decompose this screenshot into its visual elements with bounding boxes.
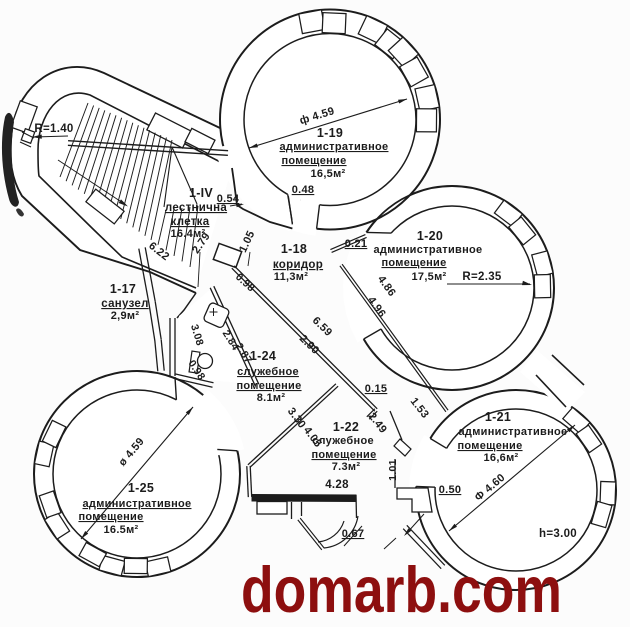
svg-text:помещение: помещение <box>311 449 376 461</box>
svg-text:0.21: 0.21 <box>345 238 368 250</box>
svg-text:1-24: 1-24 <box>250 349 276 363</box>
svg-text:1-25: 1-25 <box>128 481 154 495</box>
svg-text:0.54: 0.54 <box>217 193 240 205</box>
svg-text:помещение: помещение <box>281 155 346 167</box>
svg-text:R=1.40: R=1.40 <box>34 123 73 135</box>
svg-text:domarb.com: domarb.com <box>241 553 562 626</box>
svg-text:коридор: коридор <box>273 259 323 271</box>
svg-text:R=2.35: R=2.35 <box>462 271 502 283</box>
svg-text:0.48: 0.48 <box>292 184 315 196</box>
svg-text:16,6м²: 16,6м² <box>483 452 518 464</box>
svg-text:0.15: 0.15 <box>365 383 388 395</box>
svg-text:административное: административное <box>459 426 568 438</box>
svg-text:санузел: санузел <box>101 298 149 310</box>
svg-text:11,3м²: 11,3м² <box>274 271 308 283</box>
svg-text:1-20: 1-20 <box>417 229 443 243</box>
svg-text:помещение: помещение <box>457 440 522 452</box>
svg-text:17,5м²: 17,5м² <box>411 271 446 283</box>
svg-text:0.50: 0.50 <box>439 484 462 496</box>
svg-text:2,9м²: 2,9м² <box>111 310 140 322</box>
svg-text:16,5м²: 16,5м² <box>310 168 345 180</box>
svg-text:h=3.00: h=3.00 <box>539 528 577 540</box>
svg-text:1-22: 1-22 <box>333 420 359 434</box>
svg-text:1.01: 1.01 <box>387 459 399 481</box>
svg-text:1-17: 1-17 <box>110 282 136 296</box>
svg-text:клетка: клетка <box>171 216 210 228</box>
svg-text:1-IV: 1-IV <box>189 186 213 200</box>
svg-text:7.3м²: 7.3м² <box>332 461 361 473</box>
svg-text:4.28: 4.28 <box>325 479 349 491</box>
svg-text:0.67: 0.67 <box>342 528 365 540</box>
svg-text:помещение: помещение <box>236 380 301 392</box>
svg-text:16.5м²: 16.5м² <box>103 524 138 536</box>
svg-text:1-21: 1-21 <box>485 410 511 424</box>
svg-text:административное: административное <box>280 141 389 153</box>
svg-text:8.1м²: 8.1м² <box>257 392 286 404</box>
svg-text:1-18: 1-18 <box>281 242 307 256</box>
svg-text:служебное: служебное <box>237 366 299 378</box>
svg-text:помещение: помещение <box>78 511 143 523</box>
svg-text:1-19: 1-19 <box>317 126 343 140</box>
svg-text:помещение: помещение <box>381 257 446 269</box>
svg-text:административное: административное <box>374 244 483 256</box>
svg-text:административное: административное <box>83 498 192 510</box>
